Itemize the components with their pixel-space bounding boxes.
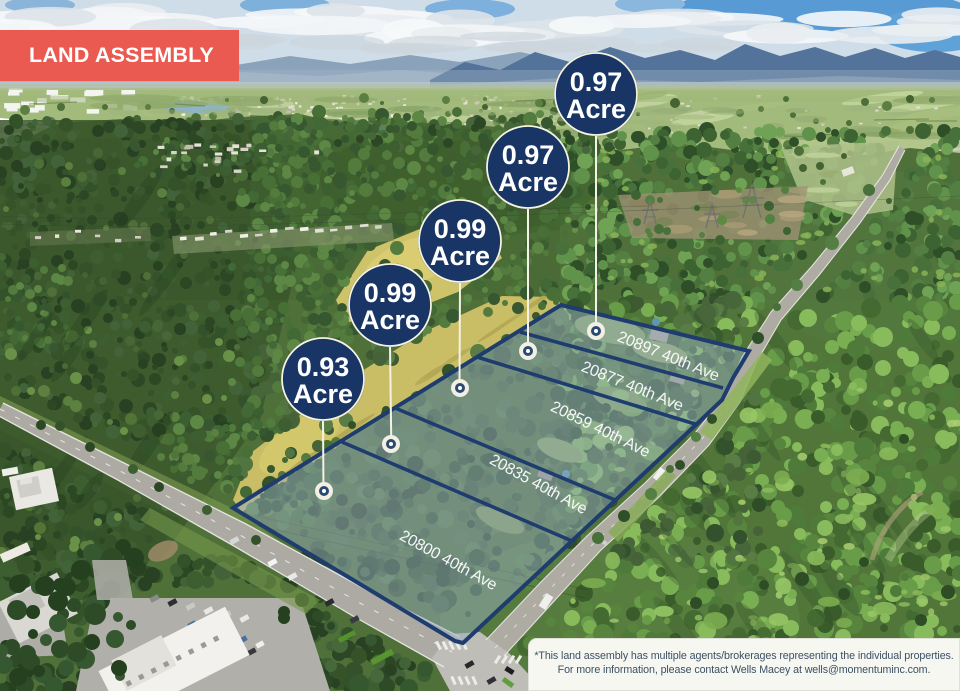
svg-text:0.93: 0.93 xyxy=(297,352,350,382)
svg-text:Acre: Acre xyxy=(360,305,420,335)
svg-text:Acre: Acre xyxy=(293,379,353,409)
svg-text:Acre: Acre xyxy=(566,94,626,124)
svg-text:Acre: Acre xyxy=(430,241,490,271)
svg-text:0.99: 0.99 xyxy=(434,214,487,244)
svg-text:Acre: Acre xyxy=(498,167,558,197)
svg-text:0.99: 0.99 xyxy=(364,278,417,308)
svg-text:0.97: 0.97 xyxy=(570,67,623,97)
svg-text:0.97: 0.97 xyxy=(502,140,555,170)
